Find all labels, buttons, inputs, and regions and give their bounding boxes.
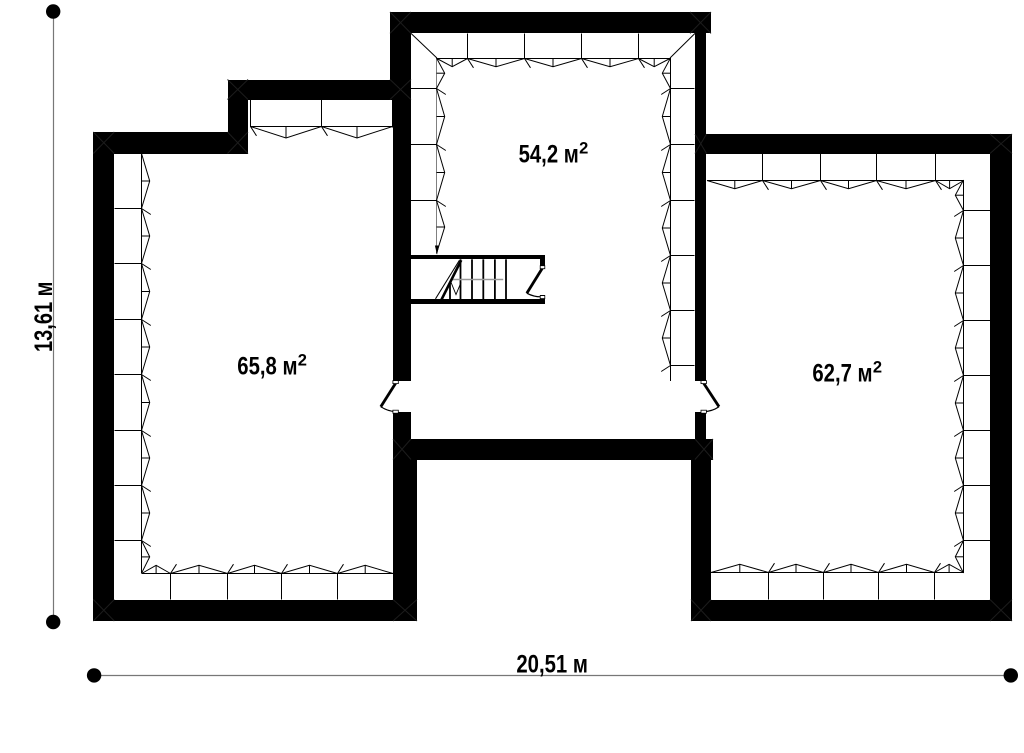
svg-text:2: 2 <box>873 359 882 377</box>
svg-text:62,7 м: 62,7 м <box>812 360 872 388</box>
svg-text:54,2 м: 54,2 м <box>519 140 579 168</box>
svg-text:2: 2 <box>579 140 588 158</box>
svg-text:13,61 м: 13,61 м <box>30 282 58 353</box>
svg-text:2: 2 <box>298 351 307 369</box>
svg-text:65,8 м: 65,8 м <box>237 352 297 380</box>
svg-text:20,51 м: 20,51 м <box>516 650 588 678</box>
